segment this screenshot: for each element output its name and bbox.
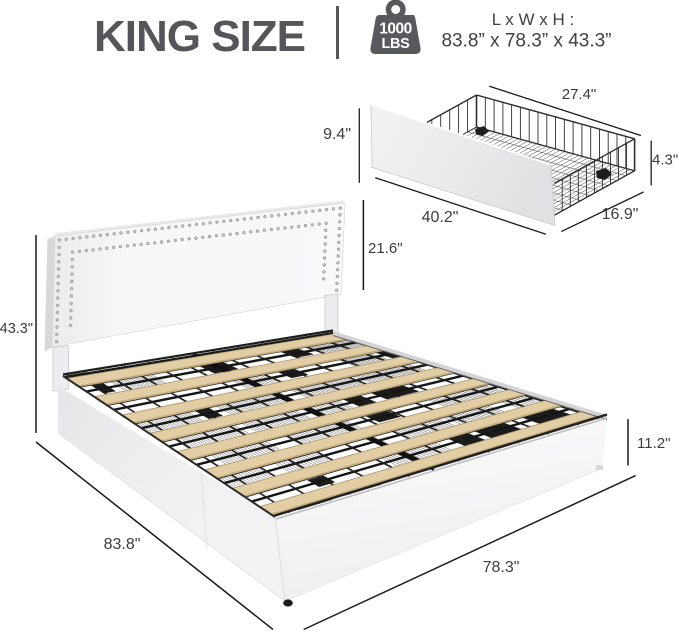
svg-text:4.3": 4.3" xyxy=(652,152,678,169)
svg-text:21.6": 21.6" xyxy=(368,240,403,257)
svg-text:43.3": 43.3" xyxy=(0,321,33,337)
svg-text:27.4": 27.4" xyxy=(562,86,597,103)
svg-text:16.9": 16.9" xyxy=(602,206,639,223)
svg-text:L x W x H :: L x W x H : xyxy=(492,10,575,29)
svg-text:83.8": 83.8" xyxy=(104,536,141,553)
svg-text:9.4": 9.4" xyxy=(323,126,351,143)
svg-text:40.2": 40.2" xyxy=(422,209,459,226)
svg-text:78.3": 78.3" xyxy=(483,559,520,576)
svg-text:1000: 1000 xyxy=(379,21,411,38)
svg-text:KING SIZE: KING SIZE xyxy=(94,12,305,61)
svg-text:LBS: LBS xyxy=(381,36,410,52)
svg-text:11.2": 11.2" xyxy=(637,435,670,452)
svg-text:83.8” x 78.3” x 43.3”: 83.8” x 78.3” x 43.3” xyxy=(441,31,611,52)
